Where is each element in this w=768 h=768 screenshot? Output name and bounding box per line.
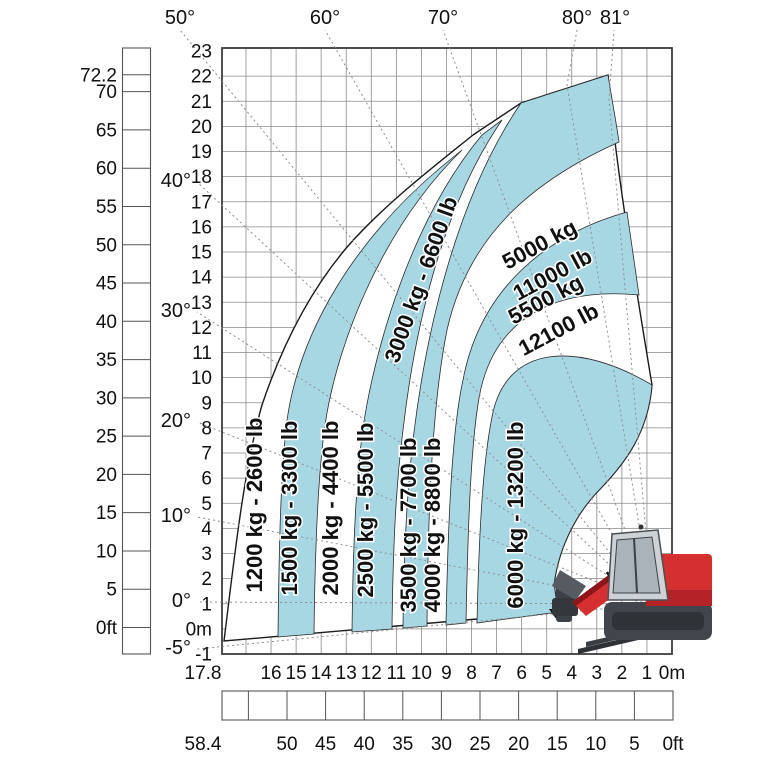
height-ft-tick-label: 35 — [96, 350, 117, 371]
zone-capacity-label: 6000 kg - 13200 lb — [503, 421, 528, 608]
height-m-tick-label: 9 — [201, 393, 212, 414]
load-chart-page: M 72.27065605550454035302520151050ft2322… — [0, 0, 768, 768]
zone-capacity-label: 3500 kg - 7700 lb — [396, 438, 421, 613]
height-ft-tick-label: 10 — [96, 541, 117, 562]
height-m-tick-label: 6 — [201, 469, 212, 490]
height-ft-tick-label: 60 — [96, 159, 117, 180]
reach-ft-ruler — [222, 691, 673, 720]
reach-m-tick-label: 0m — [659, 663, 685, 684]
height-ft-tick-label: 70 — [96, 82, 117, 103]
height-m-tick-label: 16 — [191, 217, 212, 238]
reach-m-tick-label: 3 — [592, 663, 603, 684]
boom-angle-label: 80° — [562, 7, 592, 29]
load-chart: M 72.27065605550454035302520151050ft2322… — [0, 0, 768, 768]
cab-antenna — [639, 525, 644, 530]
height-m-tick-label: 5 — [201, 494, 212, 515]
reach-m-tick-label: 15 — [286, 663, 307, 684]
height-m-tick-label: 7 — [201, 444, 212, 465]
reach-ft-tick-label: 15 — [547, 734, 568, 755]
height-m-tick-label: 21 — [191, 92, 212, 113]
reach-m-tick-label: 7 — [491, 663, 502, 684]
height-m-tick-label: 18 — [191, 167, 212, 188]
reach-m-tick-label: 5 — [541, 663, 552, 684]
reach-m-tick-label: 10 — [411, 663, 432, 684]
zone-capacity-label: 1500 kg - 3300 lb — [277, 421, 302, 596]
boom-angle-label: 30° — [161, 300, 191, 322]
reach-ft-tick-label: 35 — [392, 734, 413, 755]
reach-ft-tick-label: 0ft — [662, 734, 684, 755]
reach-m-tick-label: 17.8 — [185, 663, 222, 684]
height-m-tick-label: 11 — [192, 343, 212, 364]
height-m-tick-label: 17 — [191, 192, 212, 213]
height-m-tick-label: 12 — [191, 318, 212, 339]
height-m-tick-label: 20 — [191, 117, 212, 138]
reach-m-tick-label: 11 — [386, 663, 406, 684]
reach-m-tick-label: 12 — [361, 663, 382, 684]
height-ft-tick-label: 20 — [96, 465, 117, 486]
height-m-tick-label: 3 — [201, 544, 212, 565]
height-ft-tick-label: 5 — [106, 580, 117, 601]
height-m-tick-label: 4 — [201, 519, 212, 540]
reach-m-tick-label: 13 — [336, 663, 357, 684]
reach-ft-tick-label: 58.4 — [185, 734, 222, 755]
reach-m-tick-label: 14 — [311, 663, 333, 684]
zone-capacity-label: 2000 kg - 4400 lb — [318, 421, 343, 596]
reach-m-tick-label: 4 — [566, 663, 577, 684]
height-m-tick-label: 13 — [191, 293, 212, 314]
track — [612, 612, 704, 630]
zone-capacity-label: 4000 kg - 8800 lb — [420, 438, 445, 613]
height-ft-tick-label: 0ft — [96, 618, 118, 639]
height-ft-tick-label: 30 — [96, 388, 117, 409]
height-m-tick-label: 22 — [191, 67, 212, 88]
boom-angle-label: 0° — [172, 590, 191, 612]
boom-angle-label: 10° — [161, 505, 191, 527]
reach-ft-tick-label: 50 — [276, 734, 297, 755]
reach-ft-tick-label: 5 — [629, 734, 640, 755]
reach-m-tick-label: 1 — [642, 663, 653, 684]
reach-ft-tick-label: 10 — [585, 734, 606, 755]
telehandler-illustration: M — [552, 525, 712, 655]
reach-ft-tick-label: 40 — [354, 734, 375, 755]
reach-m-tick-label: 2 — [617, 663, 628, 684]
reach-m-tick-label: 6 — [516, 663, 527, 684]
reach-ft-tick-label: 30 — [431, 734, 452, 755]
zone-capacity-label: 1200 kg - 2600 lb — [242, 418, 267, 593]
height-ft-tick-label: 50 — [96, 235, 117, 256]
height-ft-tick-label: 15 — [96, 503, 117, 524]
height-ft-tick-label: 55 — [96, 197, 117, 218]
boom-angle-label: 50° — [165, 7, 195, 29]
height-m-tick-label: 15 — [191, 243, 212, 264]
reach-ft-tick-label: 45 — [315, 734, 336, 755]
zone-capacity-label: 2500 kg - 5500 lb — [353, 423, 378, 598]
height-ft-tick-label: 45 — [96, 274, 117, 295]
height-m-tick-label: 10 — [191, 368, 212, 389]
height-ft-tick-label: 25 — [96, 427, 117, 448]
reach-m-tick-label: 16 — [260, 663, 281, 684]
height-m-tick-label: 1 — [201, 594, 212, 615]
height-ft-tick-label: 65 — [96, 120, 117, 141]
height-m-tick-label: 19 — [191, 142, 212, 163]
boom-angle-label: 60° — [310, 7, 340, 29]
reach-ft-tick-label: 20 — [508, 734, 529, 755]
height-m-tick-label: 2 — [201, 569, 212, 590]
reach-m-tick-label: 8 — [466, 663, 477, 684]
boom-angle-label: 40° — [161, 170, 191, 192]
height-ft-tick-label: 40 — [96, 312, 117, 333]
boom-angle-label: 20° — [161, 410, 191, 432]
reach-m-tick-label: 9 — [441, 663, 452, 684]
height-m-tick-label: 14 — [191, 268, 213, 289]
reach-ft-tick-label: 25 — [469, 734, 490, 755]
boom-angle-label: -5° — [165, 637, 191, 659]
boom-angle-label: 81° — [600, 7, 630, 29]
height-ft-ruler — [123, 48, 151, 654]
height-m-tick-label: 8 — [201, 418, 212, 439]
height-m-tick-label: 23 — [191, 42, 212, 63]
boom-angle-label: 70° — [428, 7, 458, 29]
